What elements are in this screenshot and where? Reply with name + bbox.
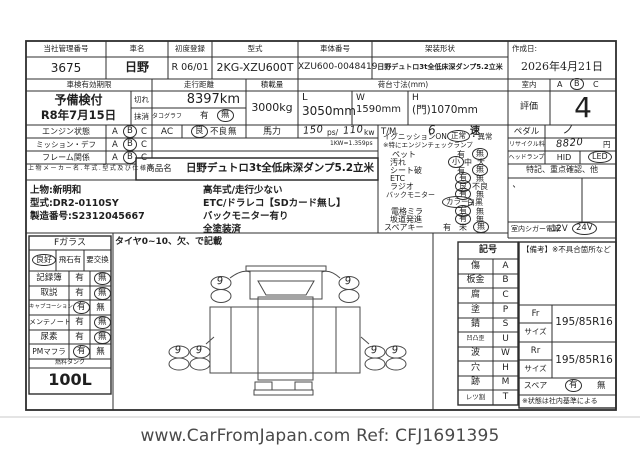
ac-bad: 不良 — [210, 128, 227, 137]
bed-dimensions-label: 荷台寸法(mm) — [298, 81, 508, 89]
legend-wave-label: 波 — [458, 349, 493, 358]
mission-option-c: C — [141, 141, 147, 150]
overall-grade-label: 評価 — [508, 103, 550, 112]
interior-option-c: C — [593, 81, 599, 89]
legend-rust-code: S — [493, 320, 518, 329]
legend-dent-code: U — [493, 335, 518, 344]
legend-paint-code: P — [493, 306, 518, 315]
body-maker-value: 上物:新明和 — [30, 186, 81, 196]
ac-none: 無 — [228, 128, 237, 137]
legend-dent-label: 凹凸歪 — [458, 336, 493, 342]
front-tire-label: Fr — [519, 310, 552, 319]
bed-width-value: 1590mm — [356, 105, 401, 116]
shaken-expiry-label: 車検有効期限 — [26, 81, 152, 89]
control-number-value: 3675 — [26, 62, 106, 75]
tire-tread-rear-left-inner: 9 — [196, 346, 204, 357]
legend-corrosion-code: C — [493, 291, 518, 300]
first-registration-label: 初度登録 — [168, 45, 212, 53]
recycle-fee-value: 8820 — [556, 138, 584, 151]
body-type-value: 日野デュトロ3t全低床深ダンプ5.2立米 — [372, 64, 508, 71]
urea-label: 尿素 — [29, 333, 69, 342]
manual-label: 取説 — [29, 289, 69, 298]
sales-note-4: 全塗装済 — [203, 225, 241, 235]
car-name-value: 日野 — [106, 61, 168, 74]
front-tire-size-value: 195/85R16 — [552, 317, 616, 328]
spare-tire-yes-selected: 有 — [565, 379, 582, 392]
pedal-handwritten-mark: ノ — [562, 124, 574, 137]
car-name-label: 車名 — [106, 45, 168, 53]
tire-tread-front-left: 9 — [217, 277, 225, 288]
shaken-date-value: R8年7月15日 — [26, 109, 131, 121]
bed-width-key: W — [356, 94, 365, 103]
fuel-tank-capacity-value: 100L — [29, 372, 111, 389]
recycle-fee-unit: 円 — [603, 141, 611, 149]
model-code-label: 型式 — [212, 45, 298, 53]
front-glass-label: Fガラス — [29, 239, 111, 248]
front-glass-replace: 要交換 — [84, 256, 111, 264]
legend-panel-code: B — [493, 276, 518, 285]
cigar-24v-selected: 24V — [572, 222, 597, 235]
ps-unit: ps/ — [327, 129, 338, 137]
frame-option-b-selected: B — [123, 151, 137, 164]
legend-panel-label: 板金 — [458, 276, 493, 285]
load-capacity-label: 積載量 — [246, 81, 298, 89]
manual-yes: 有 — [69, 289, 90, 298]
interior-grade-label: 室内 — [508, 81, 550, 89]
manual-no-selected: 無 — [94, 287, 111, 300]
product-name-value: 日野デュトロ3t全低床深ダンプ5.2立米 — [182, 163, 378, 174]
legend-paint-label: 塗 — [458, 306, 493, 315]
created-date-label: 作成日: — [512, 45, 537, 53]
frame-condition-label: フレーム関係 — [26, 154, 106, 162]
rear-tire-size-label: サイズ — [519, 365, 552, 373]
horsepower-label: 馬力 — [246, 128, 298, 137]
sales-note-1: 高年式/走行少ない — [203, 186, 282, 196]
front-glass-stone-chip: 飛石有 — [56, 256, 84, 264]
pm-muffler-no: 無 — [90, 348, 111, 357]
headlamp-hid-option: HID — [548, 154, 580, 162]
remarks-header: 【備考】※不具合箇所など — [522, 246, 611, 254]
pm-muffler-yes-selected: 有 — [73, 345, 90, 358]
expired-label: 切れ — [131, 96, 152, 104]
deregistered-label: 抹消 — [131, 113, 152, 121]
model-code-value: 2KG-XZU600T — [212, 62, 298, 74]
urea-no-selected: 無 — [94, 331, 111, 344]
front-glass-good-selected: 良好 — [32, 254, 56, 266]
spare-key-no-selected: 無 — [473, 221, 489, 233]
body-serial-value: 製造番号:S2312045667 — [30, 212, 145, 222]
kw-conversion-note: 1KW=1.359ps — [330, 141, 373, 147]
spare-key-yes: 有 — [443, 224, 451, 232]
urea-yes: 有 — [69, 333, 90, 342]
special-notes-header: 特記、重点確認、他 — [508, 166, 616, 174]
headlamp-label: ヘッドランプ — [508, 155, 545, 161]
frame-option-a: A — [112, 154, 118, 163]
horsepower-kw-value: 110 — [343, 125, 364, 137]
legend-hole-label: 穴 — [458, 364, 493, 373]
horsepower-ps-value: 150 — [303, 125, 324, 137]
cab-caution-yes-selected: 有 — [73, 301, 90, 314]
frame-option-c: C — [141, 154, 147, 163]
tire-tread-rear-right-outer: 9 — [392, 346, 400, 357]
spare-tire-label: スペア — [519, 382, 552, 390]
tire-tread-front-right: 9 — [345, 277, 353, 288]
legend-hole-code: H — [493, 364, 518, 373]
pm-muffler-label: PMマフラ — [29, 348, 69, 356]
legend-mark-label: 跡 — [458, 378, 493, 387]
legend-corrosion-label: 腐 — [458, 291, 493, 300]
fuel-tank-label: 燃料タンク — [29, 360, 111, 366]
rear-tire-size-value: 195/85R16 — [552, 355, 616, 366]
legend-crack-label: レツ割 — [458, 394, 493, 401]
front-tire-size-label: サイズ — [519, 328, 552, 336]
bed-height-value: (門)1070mm — [412, 105, 478, 116]
sales-note-3: バックモニター有り — [203, 212, 289, 222]
ignition-abnormal-option: ・異常 — [470, 133, 493, 141]
rear-tire-label: Rr — [519, 347, 552, 356]
maintenance-note-label: メンテノート — [29, 319, 69, 326]
ignition-label: イグニッションON — [383, 133, 447, 141]
legend-scratch-label: 傷 — [458, 262, 493, 271]
tachograph-label: タコグラフ — [152, 114, 182, 120]
bed-length-key: L — [302, 93, 308, 104]
chassis-number-label: 車体番号 — [298, 45, 372, 53]
maintenance-note-no-selected: 無 — [94, 316, 111, 329]
recycle-fee-label: リサイクル料 — [509, 142, 545, 148]
inspection-sheet-page: 当社管理番号 車名 初度登録 型式 車体番号 架装形状 作成日: 3675 日野… — [0, 0, 640, 453]
cab-caution-no: 無 — [90, 304, 111, 313]
mission-option-a: A — [112, 141, 118, 150]
back-monitor-label: バックモニター — [386, 192, 435, 199]
ignition-note: ※特にエンジンチェックランプ — [383, 142, 473, 149]
body-model-value: 型式:DR2-0110SY — [30, 199, 119, 209]
dirt-medium: 中 — [464, 159, 472, 167]
engine-option-b-selected: B — [123, 125, 137, 138]
spare-tire-no: 無 — [597, 382, 606, 391]
record-book-label: 記録簿 — [29, 274, 69, 283]
engine-option-a: A — [112, 128, 118, 137]
chassis-number-value: XZU600-0048419 — [298, 63, 372, 72]
carfromjapan-watermark: www.CarFromJapan.com Ref: CFJ1691395 — [0, 426, 640, 446]
cigar-12v-option: 12V — [551, 225, 568, 234]
engine-option-c: C — [141, 128, 147, 137]
cab-caution-label: キャブコーション — [29, 305, 69, 311]
bed-height-key: H — [412, 94, 419, 103]
maintenance-note-yes: 有 — [69, 318, 90, 327]
product-name-label: 商品名 — [136, 165, 182, 174]
tachograph-no-selected: 無 — [217, 109, 234, 122]
mission-diff-label: ミッション・デフ — [26, 141, 106, 149]
legend-crack-code: T — [493, 393, 518, 402]
bed-length-value: 3050mm — [302, 105, 356, 118]
spare-key-pending: 未 — [459, 224, 467, 232]
legend-mark-code: M — [493, 378, 518, 387]
load-capacity-value: 3000kg — [246, 102, 298, 114]
legend-wave-code: W — [493, 349, 518, 358]
legend-rust-label: 錆 — [458, 320, 493, 329]
legend-header: 記号 — [458, 246, 518, 255]
mileage-value: 8397km — [150, 93, 240, 107]
engine-condition-label: エンジン状態 — [26, 128, 106, 136]
pedal-label: ペダル — [508, 128, 545, 137]
tachograph-yes: 有 — [200, 112, 209, 121]
ac-good-selected: 良 — [191, 125, 208, 138]
mission-option-b-selected: B — [123, 138, 137, 151]
legend-scratch-code: A — [493, 262, 518, 271]
special-notes-handwritten-mark: 、 — [512, 181, 522, 191]
tire-tread-rear-left-outer: 9 — [175, 346, 183, 357]
ac-label: AC — [152, 128, 182, 137]
overall-grade-value: 4 — [550, 93, 616, 122]
record-book-yes: 有 — [69, 274, 90, 283]
interior-option-a: A — [557, 81, 562, 89]
interior-option-b-selected: B — [570, 78, 584, 90]
shaken-status-value: 予備検付 — [26, 94, 131, 107]
truck-top-view-diagram — [140, 250, 440, 400]
first-registration-value: R 06/01 — [168, 63, 212, 73]
condition-standard-note: ※状態は社内基準による — [522, 398, 598, 405]
sales-note-2: ETC/ドラレコ【SDカード無し】 — [203, 199, 346, 209]
record-book-no-selected: 無 — [94, 272, 111, 285]
body-type-label: 架装形状 — [372, 45, 508, 53]
created-date-value: 2026年4月21日 — [508, 61, 616, 73]
tire-tread-rear-right-inner: 9 — [371, 346, 379, 357]
mileage-label: 走行距離 — [152, 81, 246, 89]
spare-key-label: スペアキー — [384, 224, 423, 232]
tire-recording-note: タイヤ0~10、欠、で記載 — [115, 238, 222, 247]
headlamp-led-selected: LED — [588, 151, 612, 163]
control-number-label: 当社管理番号 — [26, 45, 106, 53]
kw-unit: kw — [364, 129, 374, 137]
